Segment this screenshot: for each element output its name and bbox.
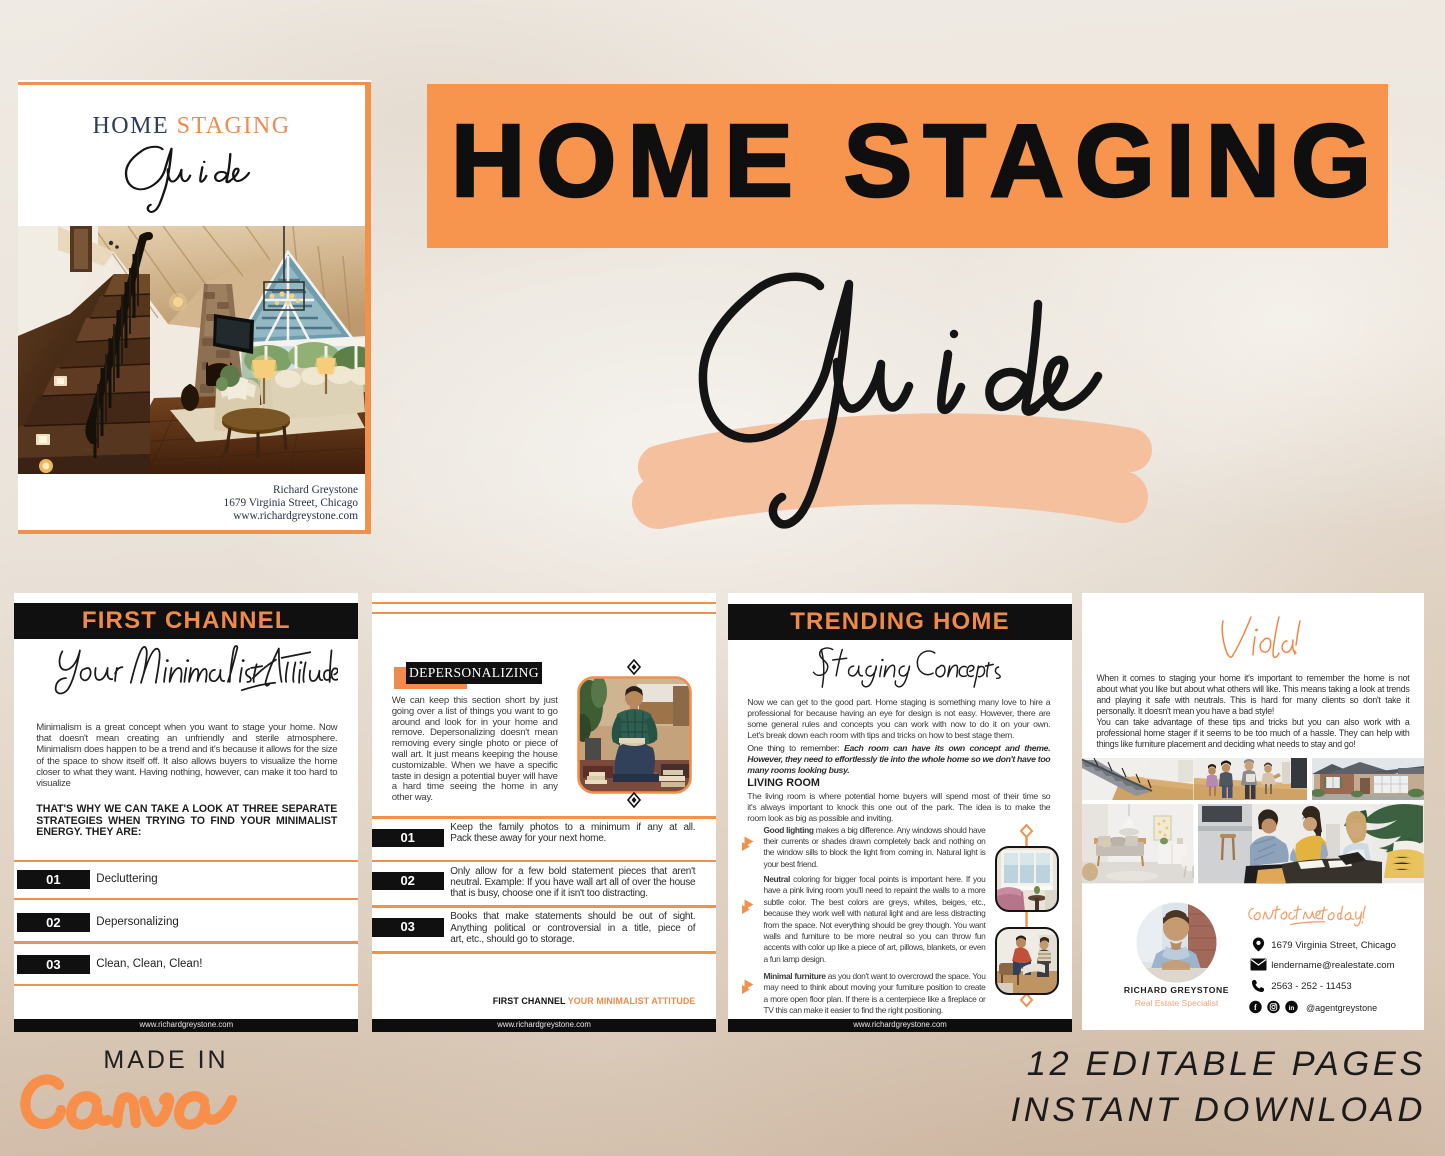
svg-text:f: f (1254, 1003, 1257, 1012)
svg-text:in: in (1289, 1005, 1295, 1012)
